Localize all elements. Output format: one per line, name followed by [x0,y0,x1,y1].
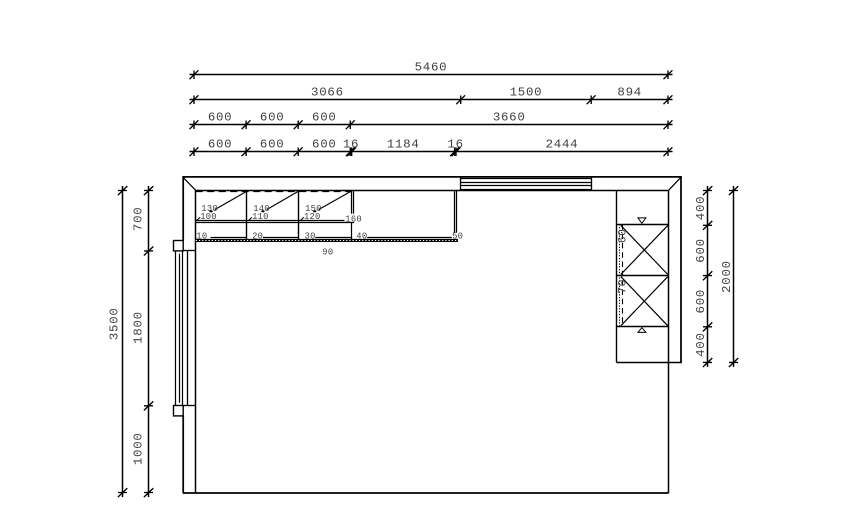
svg-text:700: 700 [132,207,146,232]
svg-text:1184: 1184 [387,137,420,151]
svg-text:5460: 5460 [415,60,448,74]
svg-text:90: 90 [322,248,333,258]
svg-text:16: 16 [343,137,359,151]
svg-text:2444: 2444 [546,137,579,151]
svg-text:600: 600 [260,137,285,151]
svg-text:1000: 1000 [132,432,146,465]
svg-text:600: 600 [208,110,233,124]
svg-text:400: 400 [694,332,708,357]
svg-text:600: 600 [260,110,285,124]
svg-text:3500: 3500 [108,307,122,340]
svg-text:3066: 3066 [311,85,344,99]
svg-text:600: 600 [312,110,337,124]
svg-text:16: 16 [447,137,463,151]
svg-text:160: 160 [345,214,362,224]
svg-text:3660: 3660 [493,110,526,124]
svg-text:70: 70 [617,279,629,294]
svg-text:60: 60 [617,228,629,243]
svg-text:100: 100 [200,212,217,222]
svg-text:2000: 2000 [720,260,734,293]
svg-text:1500: 1500 [510,85,543,99]
svg-text:894: 894 [617,85,642,99]
svg-text:600: 600 [208,137,233,151]
svg-text:400: 400 [694,196,708,221]
svg-text:120: 120 [304,212,321,222]
svg-text:600: 600 [312,137,337,151]
svg-text:600: 600 [694,238,708,263]
svg-text:110: 110 [252,212,269,222]
svg-text:600: 600 [694,289,708,314]
svg-text:1800: 1800 [132,311,146,344]
